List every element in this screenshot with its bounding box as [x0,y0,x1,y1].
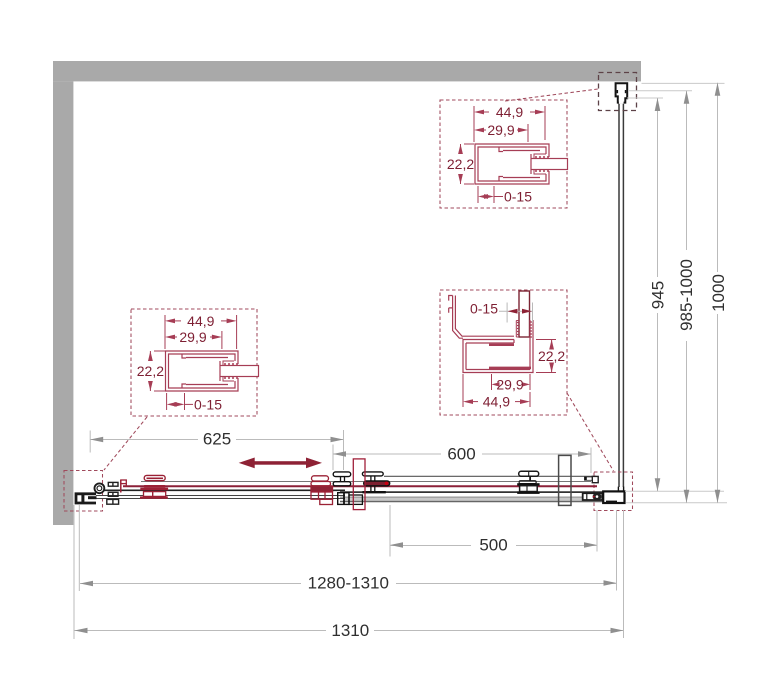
svg-text:0-15: 0-15 [194,396,222,412]
svg-text:22,2: 22,2 [447,156,474,172]
svg-text:600: 600 [447,445,475,464]
svg-text:29,9: 29,9 [487,122,514,138]
svg-text:29,9: 29,9 [496,376,523,392]
svg-text:44,9: 44,9 [483,394,510,410]
svg-text:22,2: 22,2 [137,363,164,379]
svg-text:22,2: 22,2 [538,348,565,364]
svg-text:625: 625 [203,430,231,449]
svg-text:1000: 1000 [709,274,728,312]
svg-text:0-15: 0-15 [504,189,532,205]
svg-text:500: 500 [479,536,507,555]
svg-text:1280-1310: 1280-1310 [308,574,389,593]
svg-text:945: 945 [649,281,668,309]
svg-text:0-15: 0-15 [470,301,498,317]
svg-text:1310: 1310 [331,621,369,640]
svg-text:44,9: 44,9 [187,313,214,329]
svg-text:29,9: 29,9 [179,329,206,345]
svg-text:44,9: 44,9 [496,104,523,120]
svg-text:985-1000: 985-1000 [677,259,696,331]
